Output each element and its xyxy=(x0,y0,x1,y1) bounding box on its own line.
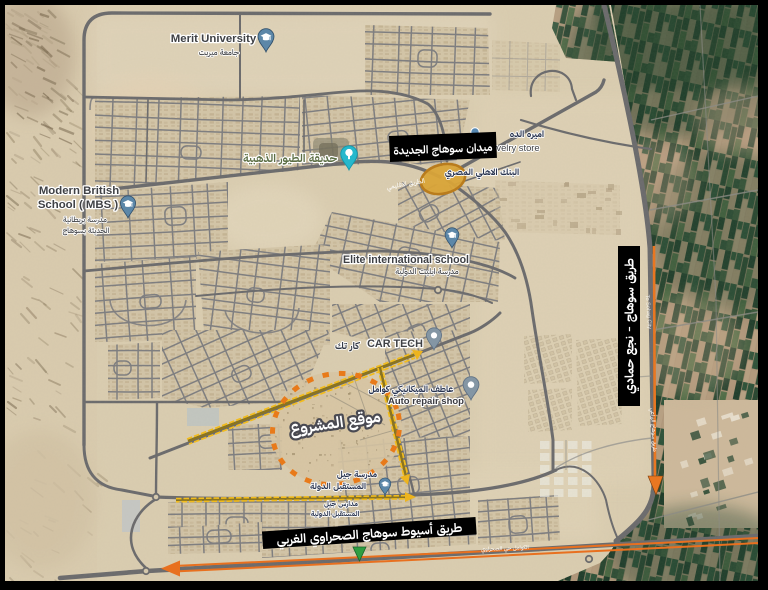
svg-text:Merit University: Merit University xyxy=(171,33,257,45)
svg-text:Modern British: Modern British xyxy=(39,185,119,197)
svg-text:CAR TECH: CAR TECH xyxy=(367,338,423,350)
svg-text:velry store: velry store xyxy=(496,142,539,153)
svg-text:School ( MBS ): School ( MBS ) xyxy=(38,199,119,211)
svg-text:Auto repair shop: Auto repair shop xyxy=(388,396,464,407)
svg-text:Elite international school: Elite international school xyxy=(343,254,469,266)
